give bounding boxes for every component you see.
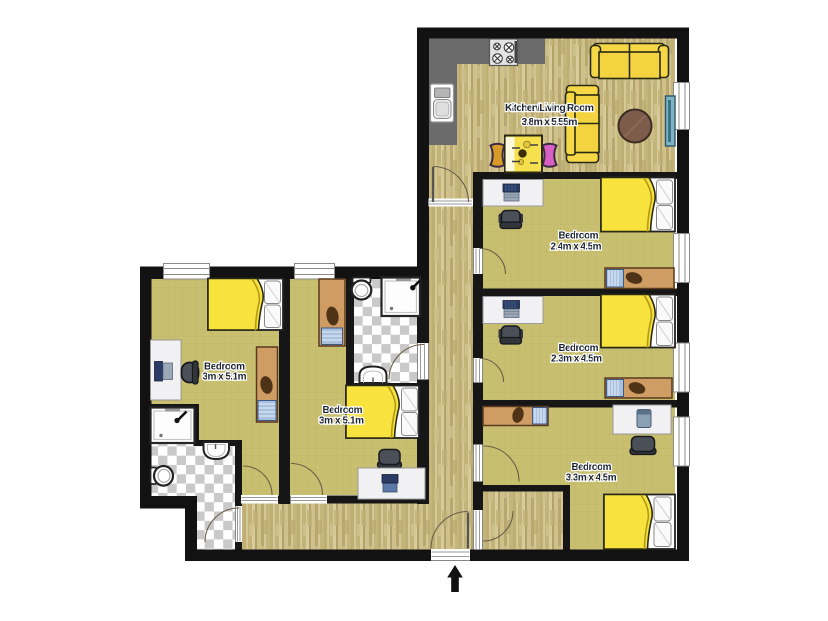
svg-text:Bedroom: Bedroom — [323, 405, 363, 416]
svg-text:Bedroom: Bedroom — [559, 231, 599, 242]
svg-text:3m x 5.1m: 3m x 5.1m — [319, 416, 364, 427]
svg-text:3.8m x 5.55m: 3.8m x 5.55m — [522, 116, 578, 128]
svg-text:2.3m x 4.5m: 2.3m x 4.5m — [551, 354, 602, 365]
svg-text:3m x 5.1m: 3m x 5.1m — [203, 372, 247, 383]
svg-text:2.4m x 4.5m: 2.4m x 4.5m — [551, 241, 602, 252]
svg-text:Bedroom: Bedroom — [572, 462, 612, 473]
svg-text:Kitchen/Living Room: Kitchen/Living Room — [505, 102, 594, 114]
svg-text:Bedroom: Bedroom — [559, 343, 599, 354]
svg-text:3.3m x 4.5m: 3.3m x 4.5m — [566, 472, 617, 483]
